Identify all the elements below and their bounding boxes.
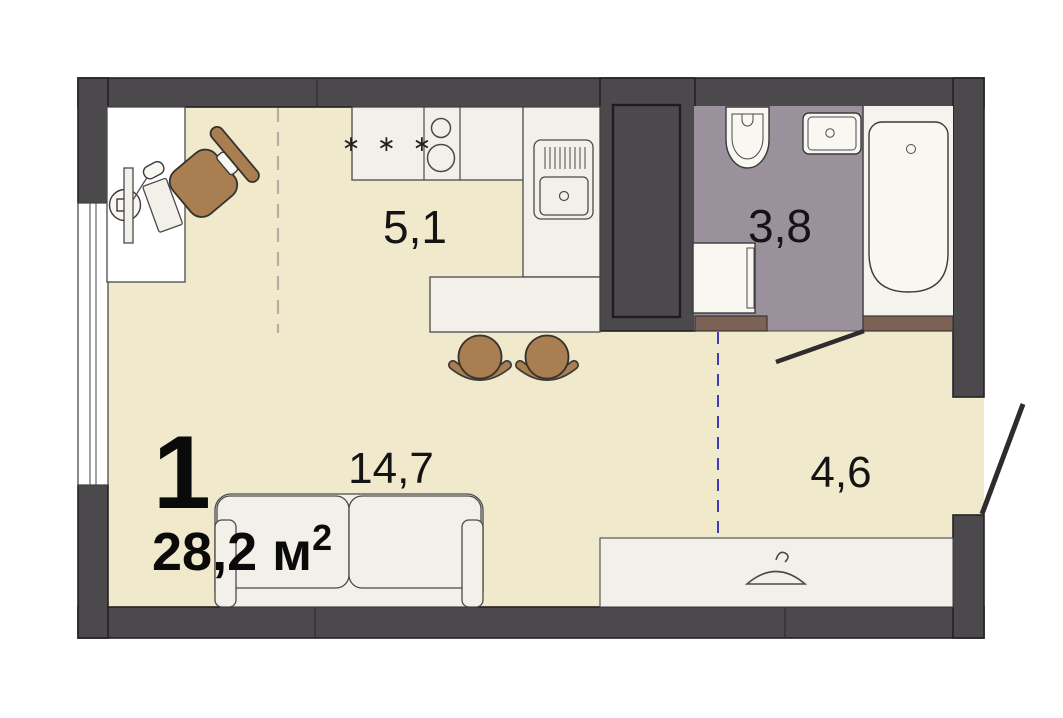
- washing-machine: [693, 243, 755, 313]
- bathroom-sink-body: [803, 113, 861, 154]
- label-area-hallway: 4,6: [810, 448, 871, 497]
- stool-seat: [459, 336, 502, 379]
- wall-left-upper: [78, 78, 108, 203]
- wardrobe: [600, 538, 953, 607]
- wardrobe-body: [600, 538, 953, 607]
- toilet: [726, 107, 769, 168]
- stool-seat: [526, 336, 569, 379]
- floor-plan-svg: ∗ ∗ ∗: [0, 0, 1063, 718]
- kitchen-sink-bowl: [540, 177, 588, 215]
- label-area-living-room: 14,7: [348, 444, 434, 493]
- sofa-cushion-right: [349, 496, 481, 588]
- kitchen-island: [430, 277, 600, 332]
- threshold-bath-niche: [863, 316, 953, 331]
- bathtub: [869, 122, 948, 292]
- wall-left-lower: [78, 485, 108, 638]
- stove-marks: ∗ ∗ ∗: [342, 132, 436, 157]
- wall-right-lower: [953, 515, 984, 638]
- washing-machine-body: [693, 243, 755, 313]
- kitchen-sink: [534, 140, 593, 219]
- entry-door-opening: [953, 397, 984, 515]
- bathtub-body: [869, 122, 948, 292]
- label-total-area-value: 28,2 м: [152, 522, 312, 582]
- label-area-bathroom: 3,8: [748, 200, 812, 252]
- window-left: [78, 203, 108, 485]
- entry-door-leaf: [982, 404, 1023, 514]
- duct-inner: [613, 105, 680, 317]
- wall-right-upper: [953, 78, 984, 397]
- label-total-area: 28,2 м2: [152, 517, 332, 582]
- threshold-bathroom: [695, 316, 767, 331]
- label-total-area-sup: 2: [312, 517, 332, 558]
- desk-workplace: [107, 107, 185, 282]
- desk-monitor: [124, 168, 133, 243]
- floor-plan: ∗ ∗ ∗: [0, 0, 1063, 718]
- wall-top: [78, 78, 984, 107]
- label-rooms-count: 1: [153, 415, 211, 531]
- bathroom-sink: [803, 113, 861, 154]
- sofa-arm-right: [462, 520, 483, 607]
- label-area-kitchen: 5,1: [383, 201, 447, 253]
- wall-bottom: [78, 607, 984, 638]
